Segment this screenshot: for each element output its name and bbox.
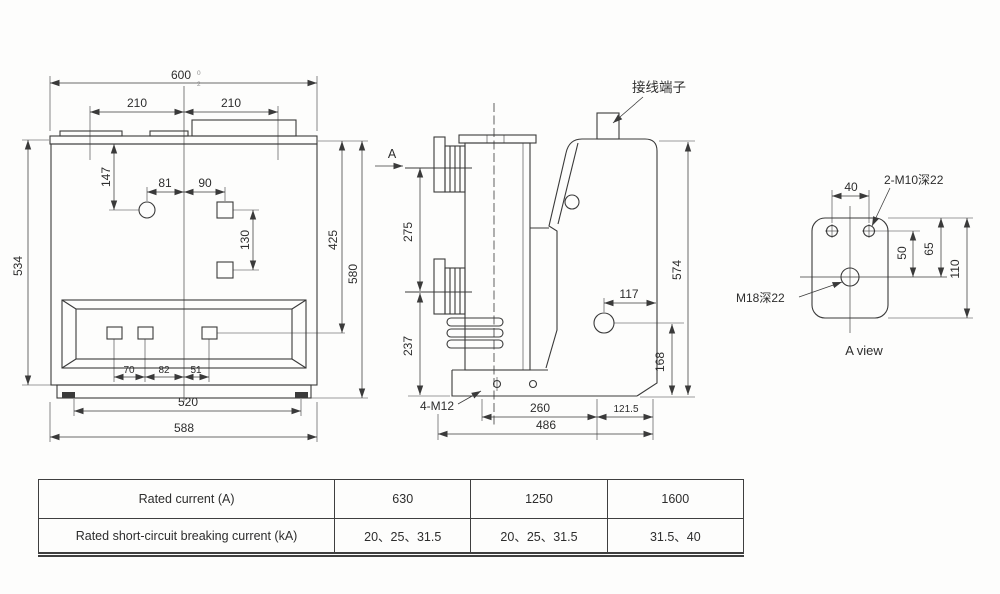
lower-bushing: [405, 259, 472, 314]
upper-bushing: [405, 137, 472, 192]
dim-574: 574: [670, 260, 684, 280]
drawing-canvas: 600 0 2 210 210 147 81 90 130: [0, 0, 1000, 470]
dim-600-tol-lower: 2: [197, 81, 201, 88]
dim-70: 70: [123, 365, 135, 376]
dim-117: 117: [619, 287, 638, 301]
dim-210-left: 210: [127, 96, 147, 110]
spec-table-container: Rated current (A) 630 1250 1600 Rated sh…: [38, 479, 744, 557]
frame-small-hole: [565, 195, 579, 209]
dim-40: 40: [844, 180, 858, 194]
dim-50: 50: [895, 246, 909, 260]
dim-130: 130: [238, 230, 252, 250]
spec-cell: 20、25、31.5: [471, 519, 607, 555]
panel-cutout-2: [138, 327, 153, 339]
spec-cell: 1600: [607, 480, 743, 519]
dim-600-tol-upper: 0: [197, 70, 201, 77]
bolt-callout-4m12: 4-M12: [420, 399, 454, 413]
table-row: Rated current (A) 630 1250 1600: [39, 480, 744, 519]
dim-275: 275: [401, 222, 415, 242]
base-hole-2: [530, 381, 537, 388]
mounting-pad: [800, 206, 947, 333]
right-foot: [295, 392, 308, 399]
dim-65: 65: [922, 242, 936, 256]
spec-cell: 630: [335, 480, 471, 519]
skirt-fins: [447, 318, 503, 348]
dim-210-right: 210: [221, 96, 241, 110]
table-row: Rated short-circuit breaking current (kA…: [39, 519, 744, 555]
callout-m18: M18深22: [736, 291, 785, 305]
a-view: 40 2-M10深22 M18深22 50 65 110 A view: [736, 173, 973, 358]
dim-81: 81: [158, 176, 172, 190]
dim-147: 147: [99, 167, 113, 187]
terminal-box: [597, 113, 619, 139]
front-view: 600 0 2 210 210 147 81 90 130: [11, 68, 368, 442]
top-raised-block: [192, 120, 296, 136]
panel-cutout-1: [107, 327, 122, 339]
left-foot: [62, 392, 75, 399]
spec-table: Rated current (A) 630 1250 1600 Rated sh…: [38, 479, 744, 557]
dim-520: 520: [178, 395, 198, 409]
dim-260: 260: [530, 401, 550, 415]
dim-486: 486: [536, 418, 556, 432]
spec-cell: 31.5、40: [607, 519, 743, 555]
dim-51: 51: [190, 365, 202, 376]
dim-237: 237: [401, 336, 415, 356]
spec-cell: 20、25、31.5: [335, 519, 471, 555]
side-view: 接线端子 A 275 237 574 168 117: [375, 79, 695, 440]
front-dimensions: 600 0 2 210 210 147 81 90 130: [11, 68, 368, 442]
square-hole-upper: [217, 202, 233, 218]
dim-121-5: 121.5: [613, 404, 638, 415]
dim-82: 82: [158, 365, 170, 376]
side-dimensions: 接线端子 A 275 237 574 168 117: [375, 79, 695, 440]
terminal-label: 接线端子: [632, 79, 686, 95]
front-recessed-panel: [62, 210, 345, 368]
square-hole-lower: [217, 262, 233, 278]
dim-600: 600: [171, 68, 191, 82]
round-hole: [139, 202, 155, 218]
dim-425: 425: [326, 230, 340, 250]
panel-cutout-3: [202, 327, 217, 339]
spec-cell-row-label: Rated short-circuit breaking current (kA…: [39, 519, 335, 555]
dim-534: 534: [11, 256, 25, 276]
dim-588: 588: [174, 421, 194, 435]
frame-large-hole: [594, 313, 614, 333]
dim-580: 580: [346, 264, 360, 284]
view-a-label: A: [388, 147, 397, 161]
dim-110: 110: [948, 259, 962, 278]
spec-cell: 1250: [471, 480, 607, 519]
spec-cell-row-label: Rated current (A): [39, 480, 335, 519]
dim-168: 168: [653, 352, 667, 372]
frame-housing: [452, 113, 684, 396]
dim-90: 90: [198, 176, 212, 190]
a-view-caption: A view: [845, 343, 883, 358]
pole-assembly: [405, 103, 536, 428]
callout-2m10: 2-M10深22: [884, 173, 944, 187]
a-view-dimensions: 40 2-M10深22 M18深22 50 65 110: [736, 173, 973, 318]
